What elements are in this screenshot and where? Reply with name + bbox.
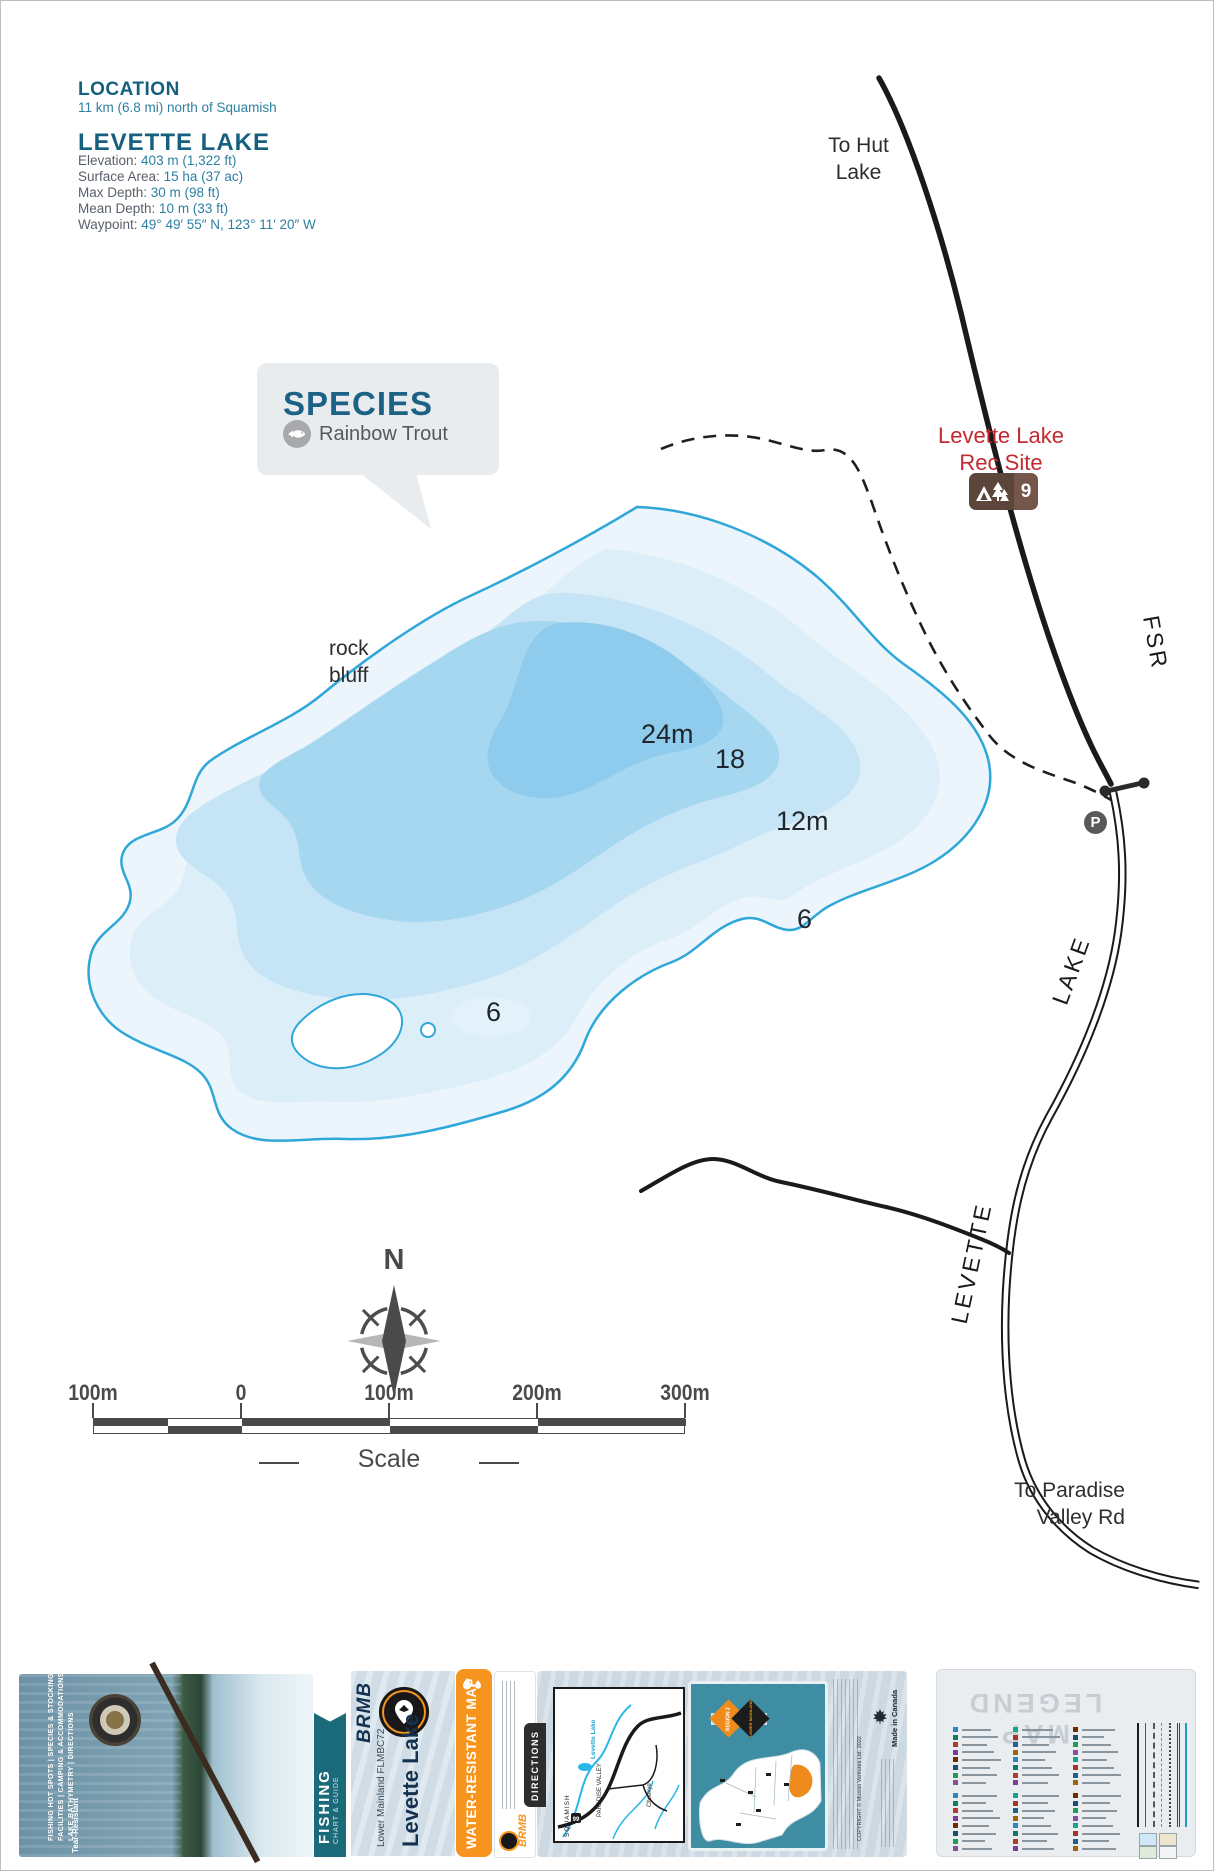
legend-line-sample bbox=[1185, 1723, 1187, 1827]
legend-line-sample bbox=[1177, 1723, 1180, 1827]
depth-label-12m: 12m bbox=[776, 806, 829, 837]
region-badge-line2: LOWER MAINLAND bbox=[748, 1700, 753, 1737]
contact-fine-print bbox=[502, 1681, 516, 1809]
stat-mean-depth: Mean Depth: 10 m (33 ft) bbox=[78, 201, 316, 217]
fishing-reel-image bbox=[89, 1694, 141, 1746]
badge-small-icon bbox=[499, 1831, 519, 1851]
directions-tab-label: DIRECTIONS bbox=[530, 1730, 540, 1801]
maple-leaf-icon bbox=[873, 1709, 887, 1725]
scale-dash-right bbox=[479, 1462, 519, 1464]
rec-site-label-line1: Levette Lake bbox=[926, 423, 1076, 449]
islet bbox=[421, 1023, 435, 1037]
map-page: LOCATION 11 km (6.8 mi) north of Squamis… bbox=[0, 0, 1214, 1871]
campsite-icon bbox=[969, 473, 1014, 510]
scale-label-4: 300m bbox=[659, 1380, 712, 1406]
legend-line-sample bbox=[1145, 1723, 1146, 1827]
stat-surface-area: Surface Area: 15 ha (37 ac) bbox=[78, 169, 316, 185]
scale-caption: Scale bbox=[309, 1445, 469, 1474]
lake-map-canvas bbox=[1, 1, 1214, 1661]
parking-icon: P bbox=[1084, 811, 1107, 834]
brmb-logo: BRMB bbox=[354, 1682, 376, 1743]
svg-text:SQUAMISH: SQUAMISH bbox=[564, 1794, 571, 1837]
legend-line-sample bbox=[1137, 1723, 1139, 1827]
legend-area-swatch bbox=[1159, 1833, 1177, 1846]
svg-text:PARADISE VALLEY: PARADISE VALLEY bbox=[597, 1763, 603, 1817]
lake-stats: Elevation: 403 m (1,322 ft) Surface Area… bbox=[78, 153, 316, 233]
tear-resistant-label: Tear-Resistant bbox=[71, 1798, 80, 1853]
scale-bar bbox=[93, 1418, 685, 1434]
legend-line-sample bbox=[1153, 1723, 1155, 1827]
scale-label-1: 0 bbox=[215, 1380, 268, 1406]
depth-label-6-east: 6 bbox=[797, 904, 812, 935]
water-resistant-label: WATER-RESISTANT MAP bbox=[464, 1678, 479, 1849]
location-text: 11 km (6.8 mi) north of Squamish bbox=[78, 100, 277, 115]
species-callout-tail bbox=[355, 469, 431, 529]
directions-inset-map: 99 SQUAMISH PARADISE VALLEY Levette Lake… bbox=[553, 1687, 685, 1843]
scale-label-2: 100m bbox=[363, 1380, 416, 1406]
road-levette-fill bbox=[1005, 792, 1199, 1585]
to-hut-lake-label: To HutLake bbox=[821, 132, 896, 186]
stat-elevation: Elevation: 403 m (1,322 ft) bbox=[78, 153, 316, 169]
region-fine-print-col2 bbox=[881, 1759, 897, 1847]
region-fine-print-col1 bbox=[833, 1679, 859, 1849]
depth-label-18: 18 bbox=[715, 744, 745, 775]
stat-max-depth: Max Depth: 30 m (98 ft) bbox=[78, 185, 316, 201]
region-overview-map bbox=[696, 1743, 822, 1847]
compass-north-label: N bbox=[379, 1244, 409, 1277]
series-label: Lower Mainland FLMBC72 bbox=[376, 1729, 387, 1847]
made-in-canada-label: Made in Canada bbox=[890, 1690, 899, 1747]
legend-area-swatch bbox=[1139, 1833, 1157, 1846]
svg-text:99: 99 bbox=[573, 1817, 580, 1823]
map-legend-title: MAP LEGEND bbox=[941, 1687, 1127, 1749]
fishing-band-title: FISHING bbox=[316, 1769, 333, 1844]
rec-site-number: 9 bbox=[1014, 473, 1038, 510]
to-paradise-valley-label: To ParadiseValley Rd bbox=[1001, 1477, 1125, 1531]
fishing-band-subtitle: CHART & GUIDE bbox=[333, 1776, 340, 1844]
rec-site-icon: 9 bbox=[969, 473, 1038, 510]
scale-label-3: 200m bbox=[511, 1380, 564, 1406]
cover-feature-line-1: FISHING HOT SPOTS | SPECIES & STOCKING bbox=[48, 1673, 55, 1841]
scale-label-0: 100m bbox=[67, 1380, 120, 1406]
rock-bluff-label: rockbluff bbox=[329, 635, 369, 689]
map-title-levette-lake: Levette Lake bbox=[399, 1687, 423, 1847]
depth-label-24m: 24m bbox=[641, 719, 694, 750]
fish-icon bbox=[283, 420, 311, 448]
legend-line-sample bbox=[1161, 1723, 1162, 1827]
legend-area-swatch bbox=[1159, 1846, 1177, 1859]
road-spur bbox=[641, 1159, 1009, 1253]
legend-area-swatch bbox=[1139, 1846, 1157, 1859]
species-name: Rainbow Trout bbox=[319, 423, 448, 446]
scale-dash-left bbox=[259, 1462, 299, 1464]
svg-text:Levette Lake: Levette Lake bbox=[590, 1719, 597, 1759]
copyright-label: COPYRIGHT © Mussio Ventures Ltd. 2022 bbox=[857, 1736, 863, 1841]
location-title: LOCATION bbox=[78, 79, 180, 101]
road-levette-casing bbox=[1005, 792, 1199, 1585]
svg-text:Cheekye: Cheekye bbox=[647, 1783, 653, 1807]
depth-label-6-west: 6 bbox=[486, 997, 501, 1028]
stat-waypoint: Waypoint: 49° 49′ 55″ N, 123° 11′ 20″ W bbox=[78, 217, 316, 233]
species-title: SPECIES bbox=[283, 385, 433, 423]
legend-line-sample bbox=[1169, 1723, 1171, 1827]
region-badge: REGION 2 LOWER MAINLAND bbox=[713, 1693, 765, 1745]
cover-feature-line-2: FACILITIES | CAMPING & ACCOMMODATIONS bbox=[58, 1672, 65, 1841]
